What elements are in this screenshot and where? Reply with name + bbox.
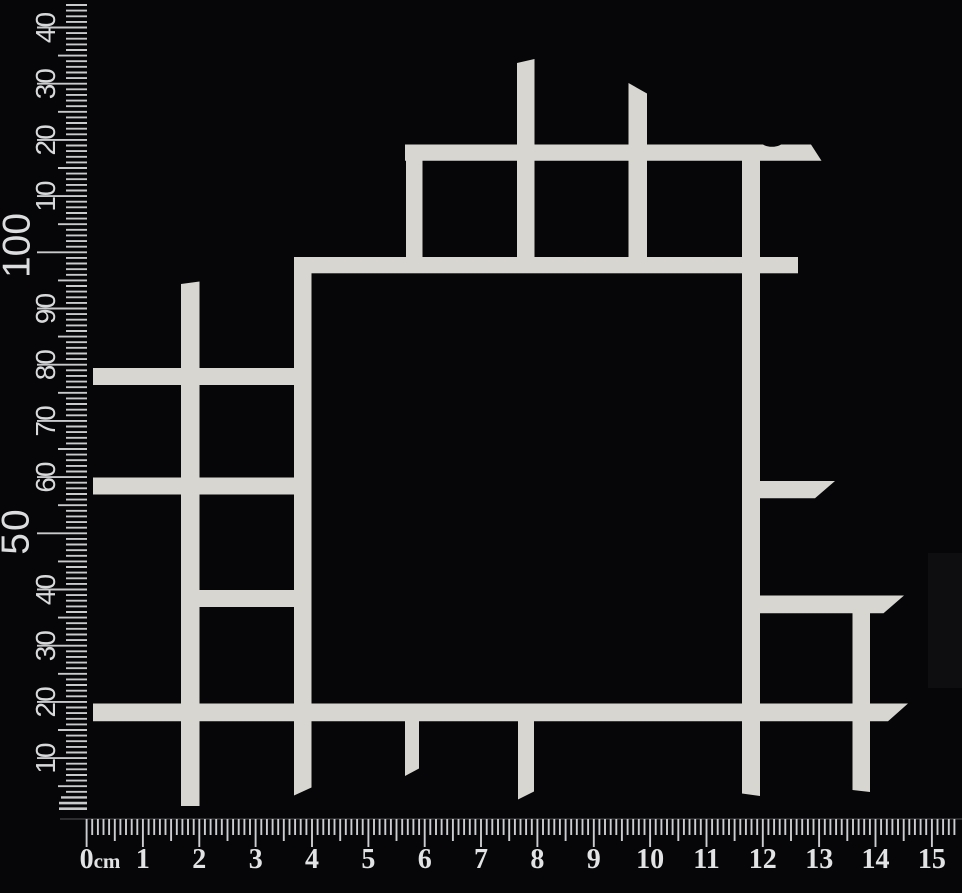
- svg-text:40: 40: [30, 12, 61, 43]
- svg-text:8: 8: [530, 844, 544, 875]
- svg-text:0cm: 0cm: [80, 844, 121, 875]
- svg-text:100: 100: [0, 213, 39, 278]
- svg-text:2: 2: [192, 844, 206, 875]
- svg-text:20: 20: [30, 686, 61, 717]
- svg-text:50: 50: [0, 507, 38, 554]
- svg-text:10: 10: [636, 844, 664, 875]
- svg-text:6: 6: [418, 844, 432, 875]
- svg-text:5: 5: [361, 844, 375, 875]
- svg-text:40: 40: [30, 574, 61, 605]
- svg-text:12: 12: [749, 844, 777, 875]
- svg-text:14: 14: [862, 844, 890, 875]
- svg-text:1: 1: [136, 844, 150, 875]
- svg-text:3: 3: [249, 844, 263, 875]
- svg-text:20: 20: [30, 124, 61, 155]
- svg-text:7: 7: [474, 844, 488, 875]
- svg-text:13: 13: [805, 844, 833, 875]
- svg-text:90: 90: [30, 293, 61, 324]
- svg-text:70: 70: [30, 405, 61, 436]
- svg-text:9: 9: [587, 844, 601, 875]
- svg-text:15: 15: [918, 844, 946, 875]
- svg-text:4: 4: [305, 844, 319, 875]
- svg-text:30: 30: [30, 630, 61, 661]
- svg-text:60: 60: [30, 462, 61, 493]
- svg-text:10: 10: [30, 181, 61, 212]
- svg-text:11: 11: [693, 844, 719, 875]
- svg-text:10: 10: [30, 743, 61, 774]
- svg-text:80: 80: [30, 349, 61, 380]
- svg-text:30: 30: [30, 68, 61, 99]
